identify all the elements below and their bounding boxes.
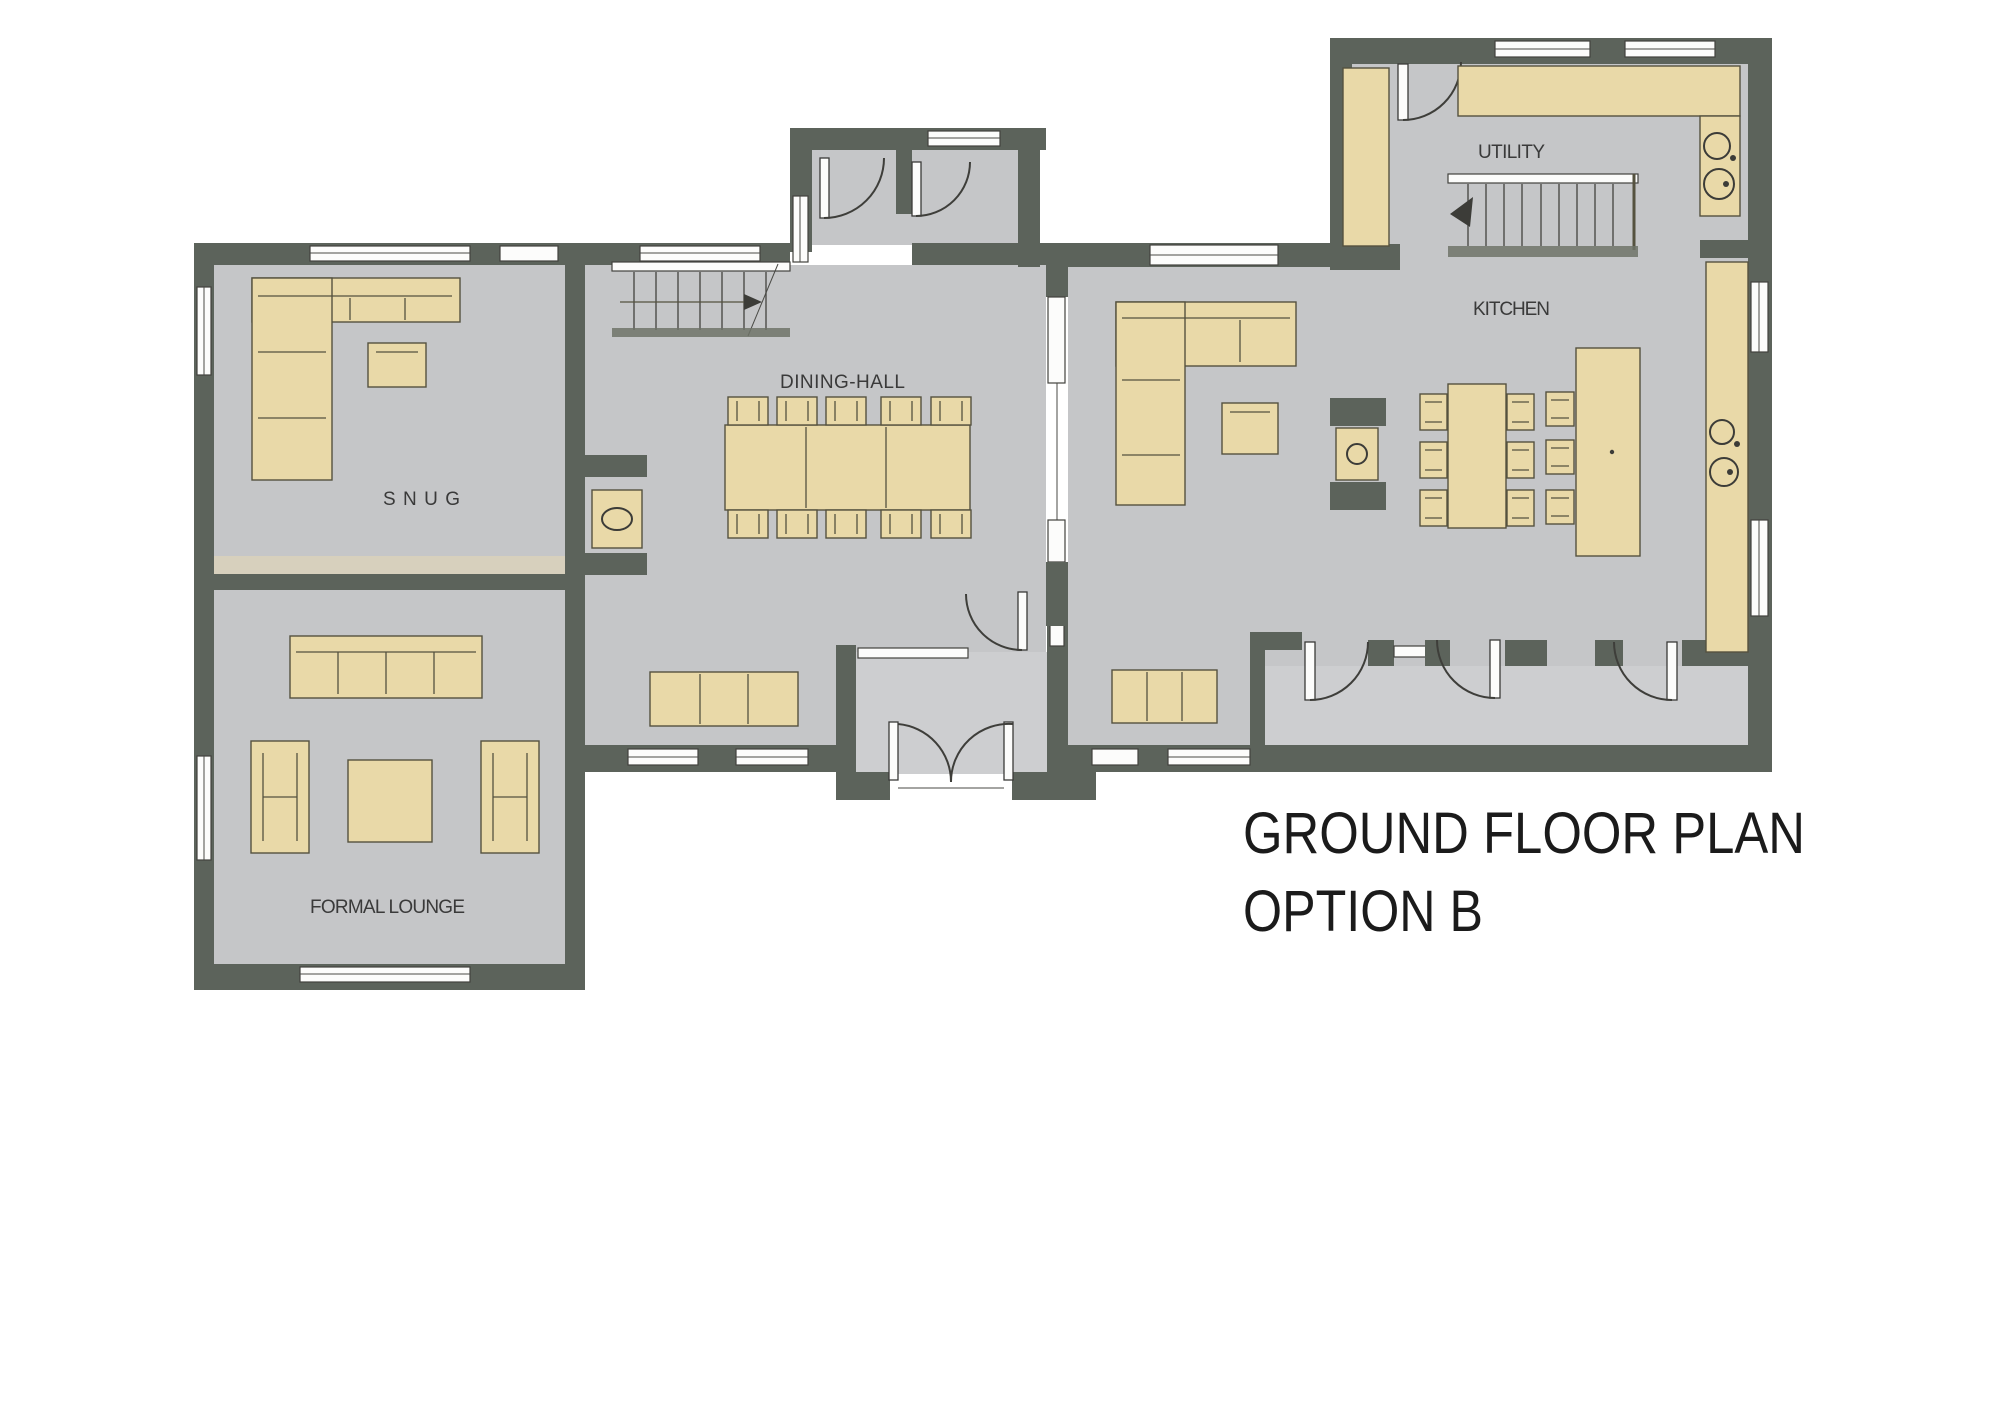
snug-ottoman	[368, 343, 426, 387]
snug-north-window	[310, 246, 558, 261]
dining-stove	[592, 490, 642, 548]
utility-kitchen-pier	[1700, 240, 1748, 258]
utility-label: UTILITY	[1478, 142, 1545, 163]
lounge-armchair-right	[481, 741, 539, 853]
porch-divider-wall	[896, 150, 912, 214]
kitchen-label: KITCHEN	[1473, 299, 1550, 320]
vestibule-south-wall-right	[1012, 772, 1096, 800]
kitchen-island	[1576, 348, 1640, 556]
porch-north-wall	[790, 128, 1046, 150]
dining-family-divider	[1046, 265, 1068, 626]
porch-north-window	[928, 131, 1000, 146]
family-ottoman	[1222, 403, 1278, 454]
floor-plan-drawing: SNUG FORMAL LOUNGE	[0, 0, 2000, 1414]
dining-chairs-top	[728, 397, 971, 425]
left-wing-east-wall	[565, 243, 585, 990]
wing-east-wall	[1748, 38, 1772, 760]
vestibule-south-wall-left	[836, 772, 890, 800]
plan-title-line1: GROUND FLOOR PLAN	[1243, 801, 1805, 866]
lounge-sofa	[290, 636, 482, 698]
dining-table	[725, 425, 970, 510]
family-bench	[1112, 670, 1217, 723]
vestibule-west-wall	[836, 645, 856, 778]
lounge-south-window	[300, 967, 470, 982]
room-divider-wall	[214, 574, 565, 590]
formal-lounge-label: FORMAL LOUNGE	[310, 897, 465, 918]
kitchen-table	[1448, 384, 1506, 528]
floor-plan-page: SNUG FORMAL LOUNGE	[0, 0, 2000, 1414]
porch-west-window	[793, 196, 808, 262]
kitchen-wing: UTILITY	[1046, 38, 1772, 772]
lounge-west-window	[197, 756, 211, 860]
utility-west-pier	[1330, 244, 1400, 270]
vestibule-floor	[856, 652, 1047, 774]
snug-west-window	[197, 287, 211, 375]
family-stove	[1336, 428, 1378, 480]
entrance-porch	[790, 128, 1046, 267]
utility-tall-cupboard	[1343, 68, 1389, 246]
vestibule-screen	[858, 648, 968, 658]
lounge-armchair-left	[251, 741, 309, 853]
dining-chairs-bottom	[728, 510, 971, 538]
plan-title: GROUND FLOOR PLAN OPTION B	[1243, 801, 1805, 944]
kitchen-stools	[1546, 392, 1574, 524]
lounge-coffee-table	[348, 760, 432, 842]
porch-south-wall	[912, 243, 1046, 265]
room-divider-step	[214, 556, 565, 574]
dining-fireplace	[585, 455, 647, 575]
dining-hall-label: DINING-HALL	[780, 372, 905, 393]
dining-bench	[650, 672, 798, 726]
kitchen-counter-right	[1706, 262, 1748, 652]
family-south-windows	[1092, 749, 1250, 765]
family-north-window	[1150, 245, 1278, 265]
dining-north-window	[640, 246, 760, 261]
family-fireplace	[1330, 398, 1386, 510]
left-wing: SNUG FORMAL LOUNGE	[194, 243, 585, 990]
plan-title-line2: OPTION B	[1243, 879, 1483, 944]
